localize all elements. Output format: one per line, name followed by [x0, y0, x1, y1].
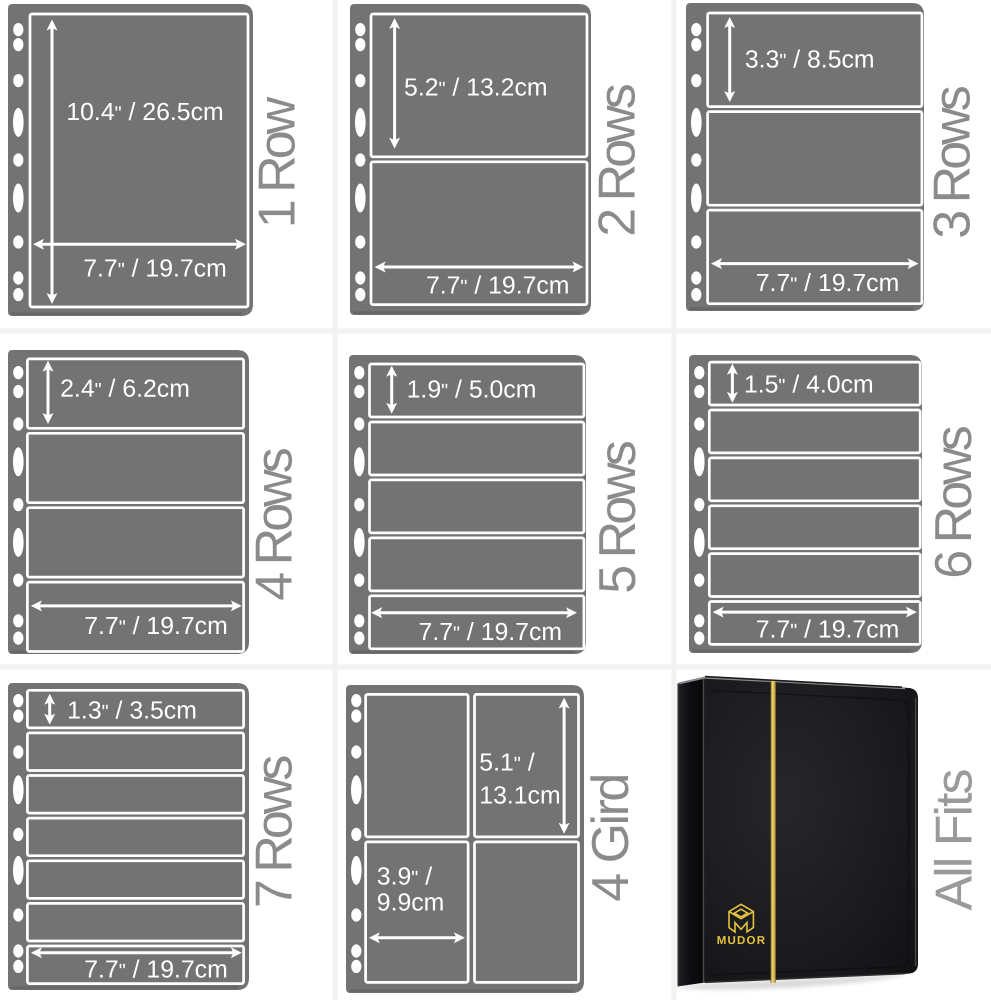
svg-text:MUDOR: MUDOR	[717, 935, 766, 947]
svg-text:10.4" / 26.5cm: 10.4" / 26.5cm	[66, 99, 223, 126]
svg-text:1.9" / 5.0cm: 1.9" / 5.0cm	[407, 376, 537, 403]
svg-text:5 Rows: 5 Rows	[589, 441, 647, 593]
svg-text:3.3" / 8.5cm: 3.3" / 8.5cm	[745, 46, 875, 73]
svg-text:7.7" / 19.7cm: 7.7" / 19.7cm	[426, 272, 570, 299]
svg-text:5.1" /: 5.1" /	[479, 750, 534, 777]
svg-text:4 Rows: 4 Rows	[246, 448, 304, 600]
svg-text:7.7" / 19.7cm: 7.7" / 19.7cm	[83, 255, 227, 282]
svg-text:2.4" / 6.2cm: 2.4" / 6.2cm	[60, 376, 190, 403]
svg-text:All Fits: All Fits	[926, 770, 984, 911]
svg-text:7.7" / 19.7cm: 7.7" / 19.7cm	[756, 270, 900, 297]
svg-text:7.7" / 19.7cm: 7.7" / 19.7cm	[84, 613, 228, 640]
svg-text:9.9cm: 9.9cm	[377, 890, 445, 917]
svg-text:7.7" / 19.7cm: 7.7" / 19.7cm	[756, 616, 900, 643]
svg-text:2 Rows: 2 Rows	[589, 84, 647, 236]
svg-text:13.1cm: 13.1cm	[479, 783, 560, 810]
svg-text:7 Rows: 7 Rows	[245, 756, 303, 908]
svg-text:1 Row: 1 Row	[249, 96, 307, 228]
svg-text:5.2" / 13.2cm: 5.2" / 13.2cm	[404, 74, 548, 101]
svg-text:6 Rows: 6 Rows	[925, 426, 983, 578]
svg-text:4 Gird: 4 Gird	[582, 775, 640, 902]
svg-text:3 Rows: 3 Rows	[924, 86, 982, 238]
svg-text:3.9" /: 3.9" /	[377, 864, 432, 891]
svg-text:7.7" / 19.7cm: 7.7" / 19.7cm	[84, 956, 228, 983]
svg-text:1.5" / 4.0cm: 1.5" / 4.0cm	[744, 371, 874, 398]
svg-text:1.3" / 3.5cm: 1.3" / 3.5cm	[67, 697, 197, 724]
svg-text:7.7" / 19.7cm: 7.7" / 19.7cm	[419, 619, 563, 646]
